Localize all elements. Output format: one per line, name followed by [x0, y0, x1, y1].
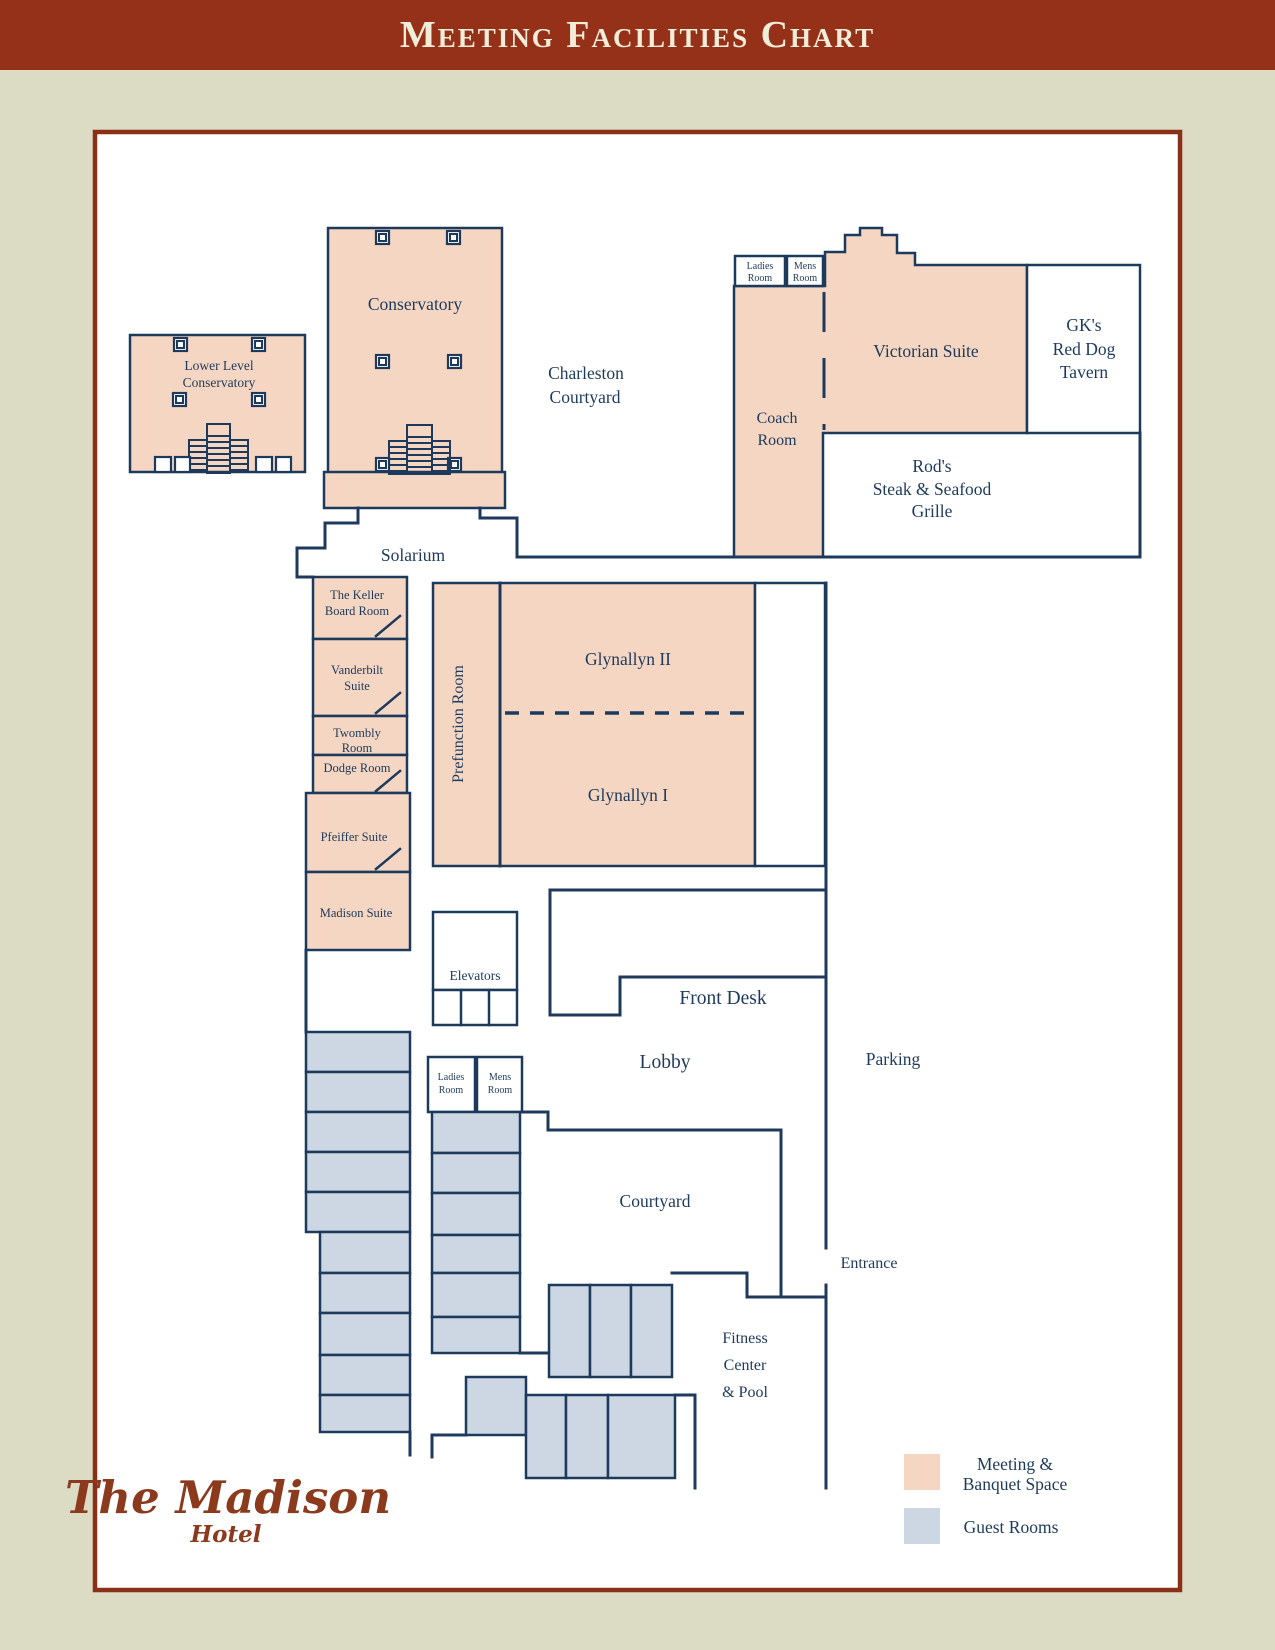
label-prefunction: Prefunction Room: [450, 665, 467, 783]
label-glynallyn-1: Glynallyn I: [588, 785, 668, 805]
label-gk-2: Red Dog: [1053, 339, 1116, 359]
guest-room: [306, 1192, 410, 1232]
label-mens-lower-1: Mens: [489, 1072, 511, 1083]
label-coach-2: Room: [757, 432, 797, 449]
guest-room: [432, 1193, 520, 1235]
label-mens-upper-2: Room: [793, 273, 818, 284]
label-rods-1: Rod's: [912, 456, 951, 476]
label-keller-1: The Keller: [330, 588, 385, 602]
label-fitness-2: Center: [724, 1357, 767, 1374]
guest-room: [320, 1395, 410, 1432]
guest-room: [631, 1285, 672, 1377]
label-dodge: Dodge Room: [323, 761, 390, 775]
label-victorian-suite: Victorian Suite: [873, 341, 979, 361]
label-keller-2: Board Room: [325, 604, 390, 618]
guest-room: [590, 1285, 631, 1377]
room-conservatory-base: [324, 472, 505, 508]
guest-room: [306, 1032, 410, 1072]
legend-swatch-guest: [904, 1508, 940, 1544]
label-conservatory: Conservatory: [368, 294, 463, 314]
label-front-desk: Front Desk: [679, 988, 766, 1009]
label-gk-3: Tavern: [1060, 362, 1109, 382]
label-twombly-1: Twombly: [333, 726, 381, 740]
guest-room: [306, 1112, 410, 1152]
guest-room: [306, 1072, 410, 1112]
label-ladies-upper-1: Ladies: [747, 261, 774, 272]
label-coach-1: Coach: [757, 410, 798, 427]
room-vanderbilt-suite: [313, 639, 407, 716]
guest-room: [432, 1112, 520, 1153]
label-glynallyn-2: Glynallyn II: [585, 649, 671, 669]
guest-room: [432, 1273, 520, 1317]
legend-swatch-meeting: [904, 1454, 940, 1490]
label-lobby: Lobby: [640, 1052, 691, 1073]
guest-room: [526, 1395, 566, 1478]
elevator-shafts: [433, 990, 517, 1025]
label-ladies-upper-2: Room: [748, 273, 773, 284]
logo-name: The Madison: [65, 1471, 391, 1524]
corridor-glynallyn-east: [755, 583, 825, 866]
guest-room: [566, 1395, 608, 1478]
guest-room: [320, 1273, 410, 1313]
label-vanderbilt-1: Vanderbilt: [331, 663, 384, 677]
label-ladies-lower-2: Room: [439, 1085, 464, 1096]
guest-room: [306, 1152, 410, 1192]
label-parking: Parking: [866, 1049, 921, 1069]
guest-room: [320, 1232, 410, 1273]
label-rods-2: Steak & Seafood: [873, 479, 992, 499]
label-mens-upper-1: Mens: [794, 261, 816, 272]
label-gk-1: GK's: [1066, 315, 1101, 335]
page: Meeting Facilities Chart: [0, 0, 1275, 1650]
label-twombly-2: Room: [342, 741, 373, 755]
legend-guest: Guest Rooms: [964, 1517, 1059, 1537]
label-madison-suite: Madison Suite: [320, 906, 393, 920]
guest-room: [549, 1285, 590, 1377]
room-glynallyn-block: [433, 583, 755, 866]
label-mens-lower-2: Room: [488, 1085, 513, 1096]
guest-room: [608, 1395, 675, 1478]
label-charleston-2: Courtyard: [550, 387, 621, 407]
label-courtyard: Courtyard: [620, 1191, 691, 1211]
label-solarium: Solarium: [381, 545, 446, 565]
guest-room: [432, 1317, 520, 1353]
guest-room: [320, 1313, 410, 1355]
label-ladies-lower-1: Ladies: [438, 1072, 465, 1083]
room-lower-level-conservatory: [130, 335, 305, 472]
floor-plan: Lower Level Conservatory Conservatory Ch…: [0, 0, 1275, 1650]
guest-room: [432, 1153, 520, 1193]
label-charleston-1: Charleston: [548, 363, 624, 383]
guest-room: [466, 1377, 526, 1435]
logo-type: Hotel: [189, 1521, 261, 1548]
label-elevators: Elevators: [450, 968, 501, 983]
label-vanderbilt-2: Suite: [344, 679, 370, 693]
label-fitness-1: Fitness: [722, 1330, 767, 1347]
guest-room: [320, 1355, 410, 1395]
legend-meeting-2: Banquet Space: [963, 1474, 1068, 1494]
label-pfeiffer: Pfeiffer Suite: [321, 830, 388, 844]
label-entrance: Entrance: [841, 1255, 898, 1272]
guest-room: [432, 1235, 520, 1273]
label-rods-3: Grille: [912, 501, 953, 521]
label-lower-level-1: Lower Level: [184, 358, 254, 373]
label-lower-level-2: Conservatory: [183, 375, 256, 390]
label-fitness-3: & Pool: [722, 1384, 768, 1401]
legend-meeting-1: Meeting &: [977, 1454, 1054, 1474]
